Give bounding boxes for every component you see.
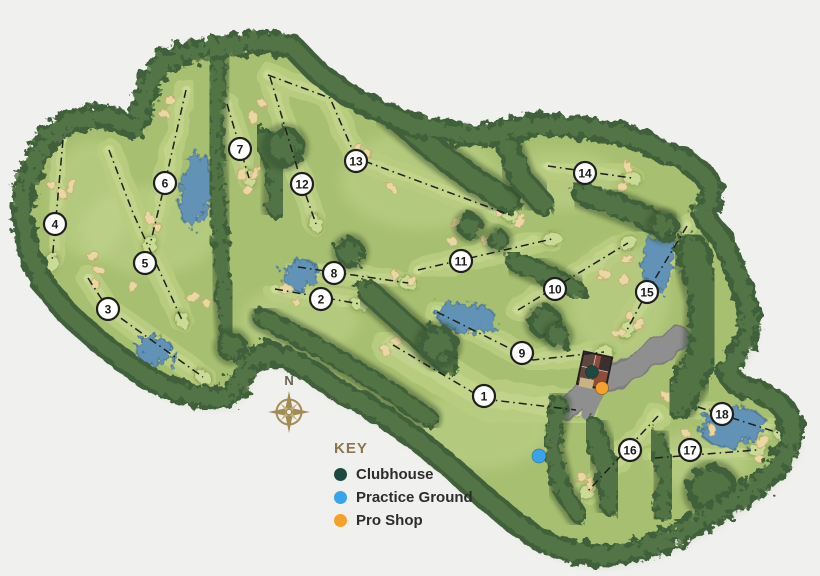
hole-marker-1: 1	[473, 385, 495, 407]
hole-marker-8: 8	[323, 262, 345, 284]
svg-text:1: 1	[481, 389, 488, 403]
svg-text:9: 9	[519, 346, 526, 360]
compass-rose: N	[268, 373, 310, 433]
svg-text:17: 17	[683, 443, 697, 457]
svg-text:2: 2	[318, 292, 325, 306]
key-item-practice-ground: Practice Ground	[334, 490, 473, 504]
hole-marker-13: 13	[345, 150, 367, 172]
practice-ground-key-dot	[334, 491, 347, 504]
map-key: KEY ClubhousePractice GroundPro Shop	[334, 440, 473, 536]
key-item-label: Clubhouse	[356, 466, 434, 483]
hole-marker-6: 6	[154, 172, 176, 194]
hole-marker-15: 15	[636, 281, 658, 303]
hole-marker-18: 18	[711, 403, 733, 425]
key-items: ClubhousePractice GroundPro Shop	[334, 467, 473, 527]
hole-marker-11: 11	[450, 250, 472, 272]
svg-text:18: 18	[715, 407, 729, 421]
hole-marker-16: 16	[619, 439, 641, 461]
hole-marker-9: 9	[511, 342, 533, 364]
pro-shop-key-dot	[334, 514, 347, 527]
svg-text:7: 7	[237, 142, 244, 156]
compass-n-label: N	[284, 373, 293, 388]
hole-marker-3: 3	[97, 298, 119, 320]
key-title: KEY	[334, 440, 473, 457]
svg-text:11: 11	[455, 254, 468, 268]
svg-text:8: 8	[331, 266, 338, 280]
svg-text:6: 6	[162, 176, 169, 190]
key-item-pro-shop: Pro Shop	[334, 513, 473, 527]
compass-rose: N	[268, 373, 310, 433]
svg-text:4: 4	[52, 217, 59, 231]
svg-text:16: 16	[623, 443, 637, 457]
key-item-clubhouse: Clubhouse	[334, 467, 473, 481]
hole-marker-14: 14	[574, 162, 596, 184]
svg-text:12: 12	[295, 177, 309, 191]
svg-text:5: 5	[142, 256, 149, 270]
hole-marker-17: 17	[679, 439, 701, 461]
key-item-label: Practice Ground	[356, 489, 473, 506]
svg-text:14: 14	[578, 166, 592, 180]
clubhouse-key-dot	[334, 468, 347, 481]
practice-ground-dot	[532, 449, 546, 463]
clubhouse-dot	[586, 366, 599, 379]
key-item-label: Pro Shop	[356, 512, 423, 529]
hole-marker-4: 4	[44, 213, 66, 235]
pro-shop-dot	[596, 382, 609, 395]
svg-text:15: 15	[640, 285, 654, 299]
golf-course-map: 123456789101112131415161718 N KEY Clubho…	[0, 0, 820, 576]
svg-text:10: 10	[548, 282, 562, 296]
svg-text:13: 13	[349, 154, 363, 168]
hole-marker-7: 7	[229, 138, 251, 160]
hole-marker-12: 12	[291, 173, 313, 195]
svg-text:3: 3	[105, 302, 112, 316]
hole-marker-2: 2	[310, 288, 332, 310]
hole-marker-10: 10	[544, 278, 566, 300]
hole-marker-5: 5	[134, 252, 156, 274]
